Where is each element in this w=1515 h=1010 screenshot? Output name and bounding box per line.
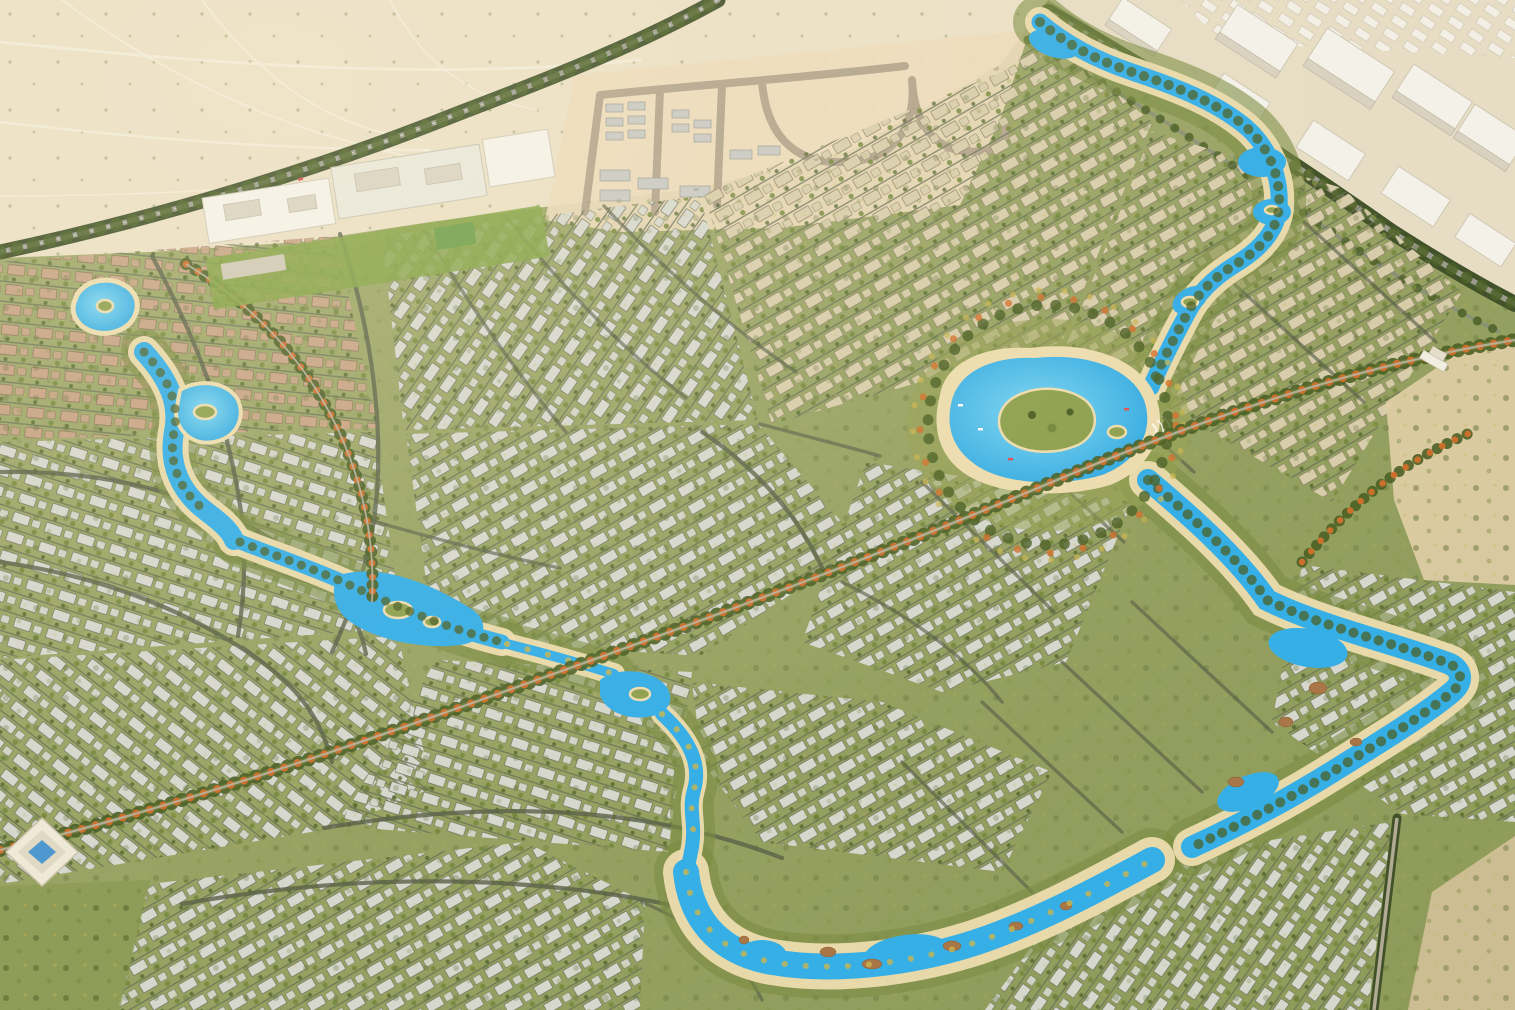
light-overlay xyxy=(0,0,1515,1010)
masterplan-svg xyxy=(0,0,1515,1010)
aerial-render: Aerial 3D render of a desert master-plan… xyxy=(0,0,1515,1010)
